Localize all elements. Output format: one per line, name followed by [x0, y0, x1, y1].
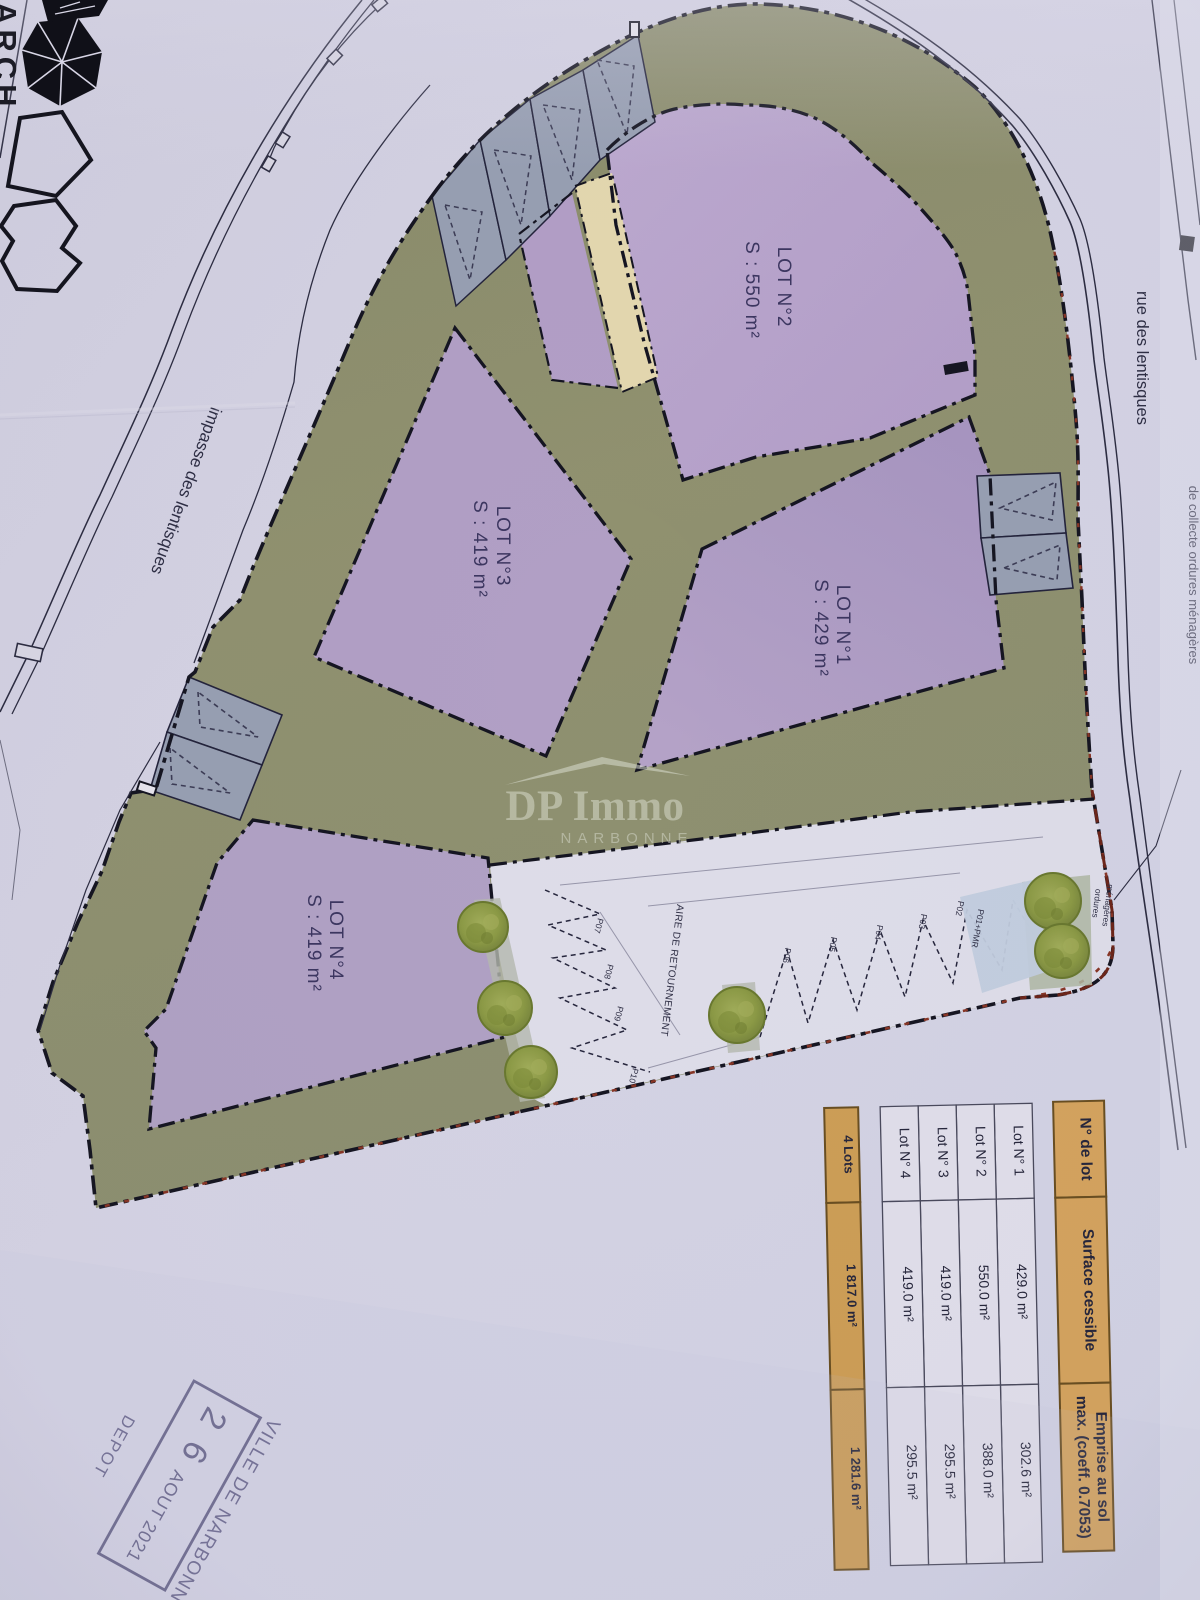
svg-text:ARCH: ARCH — [0, 2, 23, 112]
